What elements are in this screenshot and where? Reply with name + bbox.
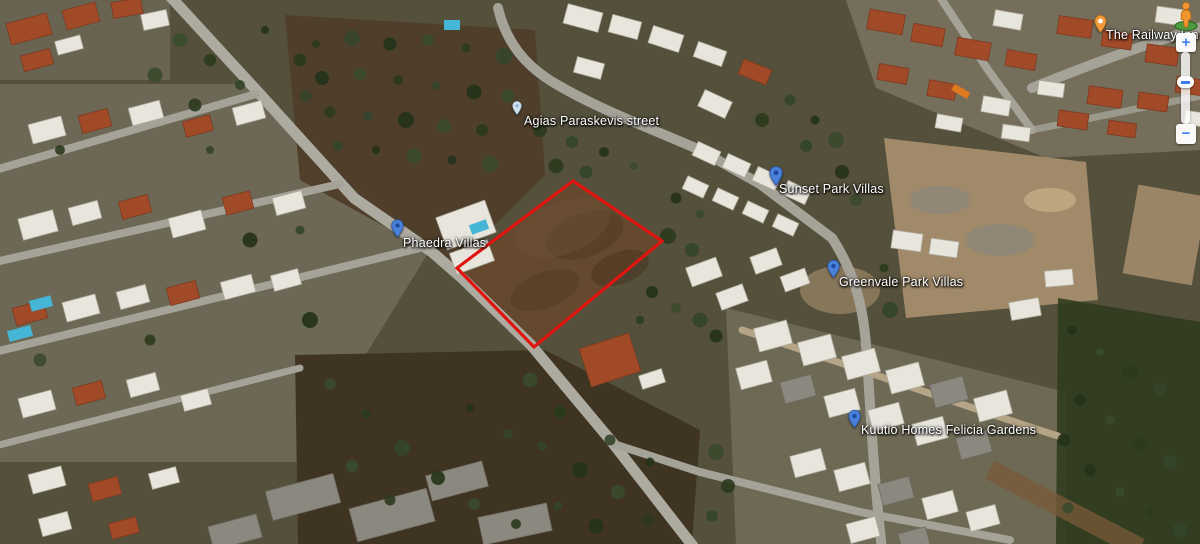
zoom-out-button[interactable]: −	[1176, 124, 1196, 144]
zoom-slider-handle[interactable]	[1177, 76, 1194, 88]
place-pin-icon	[848, 409, 861, 429]
zoom-in-button[interactable]: +	[1176, 33, 1196, 52]
map-navigation-controls: + −	[1170, 0, 1200, 155]
satellite-map[interactable]: Agias Paraskevis street Phaedra Villas S…	[0, 0, 1200, 544]
map-label-text: Agias Paraskevis street	[524, 114, 659, 128]
map-label-text: Phaedra Villas	[403, 236, 486, 250]
map-label-text: Greenvale Park Villas	[839, 275, 963, 289]
map-label-text: Sunset Park Villas	[779, 182, 884, 196]
map-canvas	[0, 0, 1200, 544]
street-pin-icon	[512, 101, 522, 115]
zoom-slider-track[interactable]	[1181, 52, 1190, 124]
map-label-text: Kuutio Homes Felicia Gardens	[861, 423, 1036, 437]
pegman-icon[interactable]	[1173, 1, 1199, 31]
